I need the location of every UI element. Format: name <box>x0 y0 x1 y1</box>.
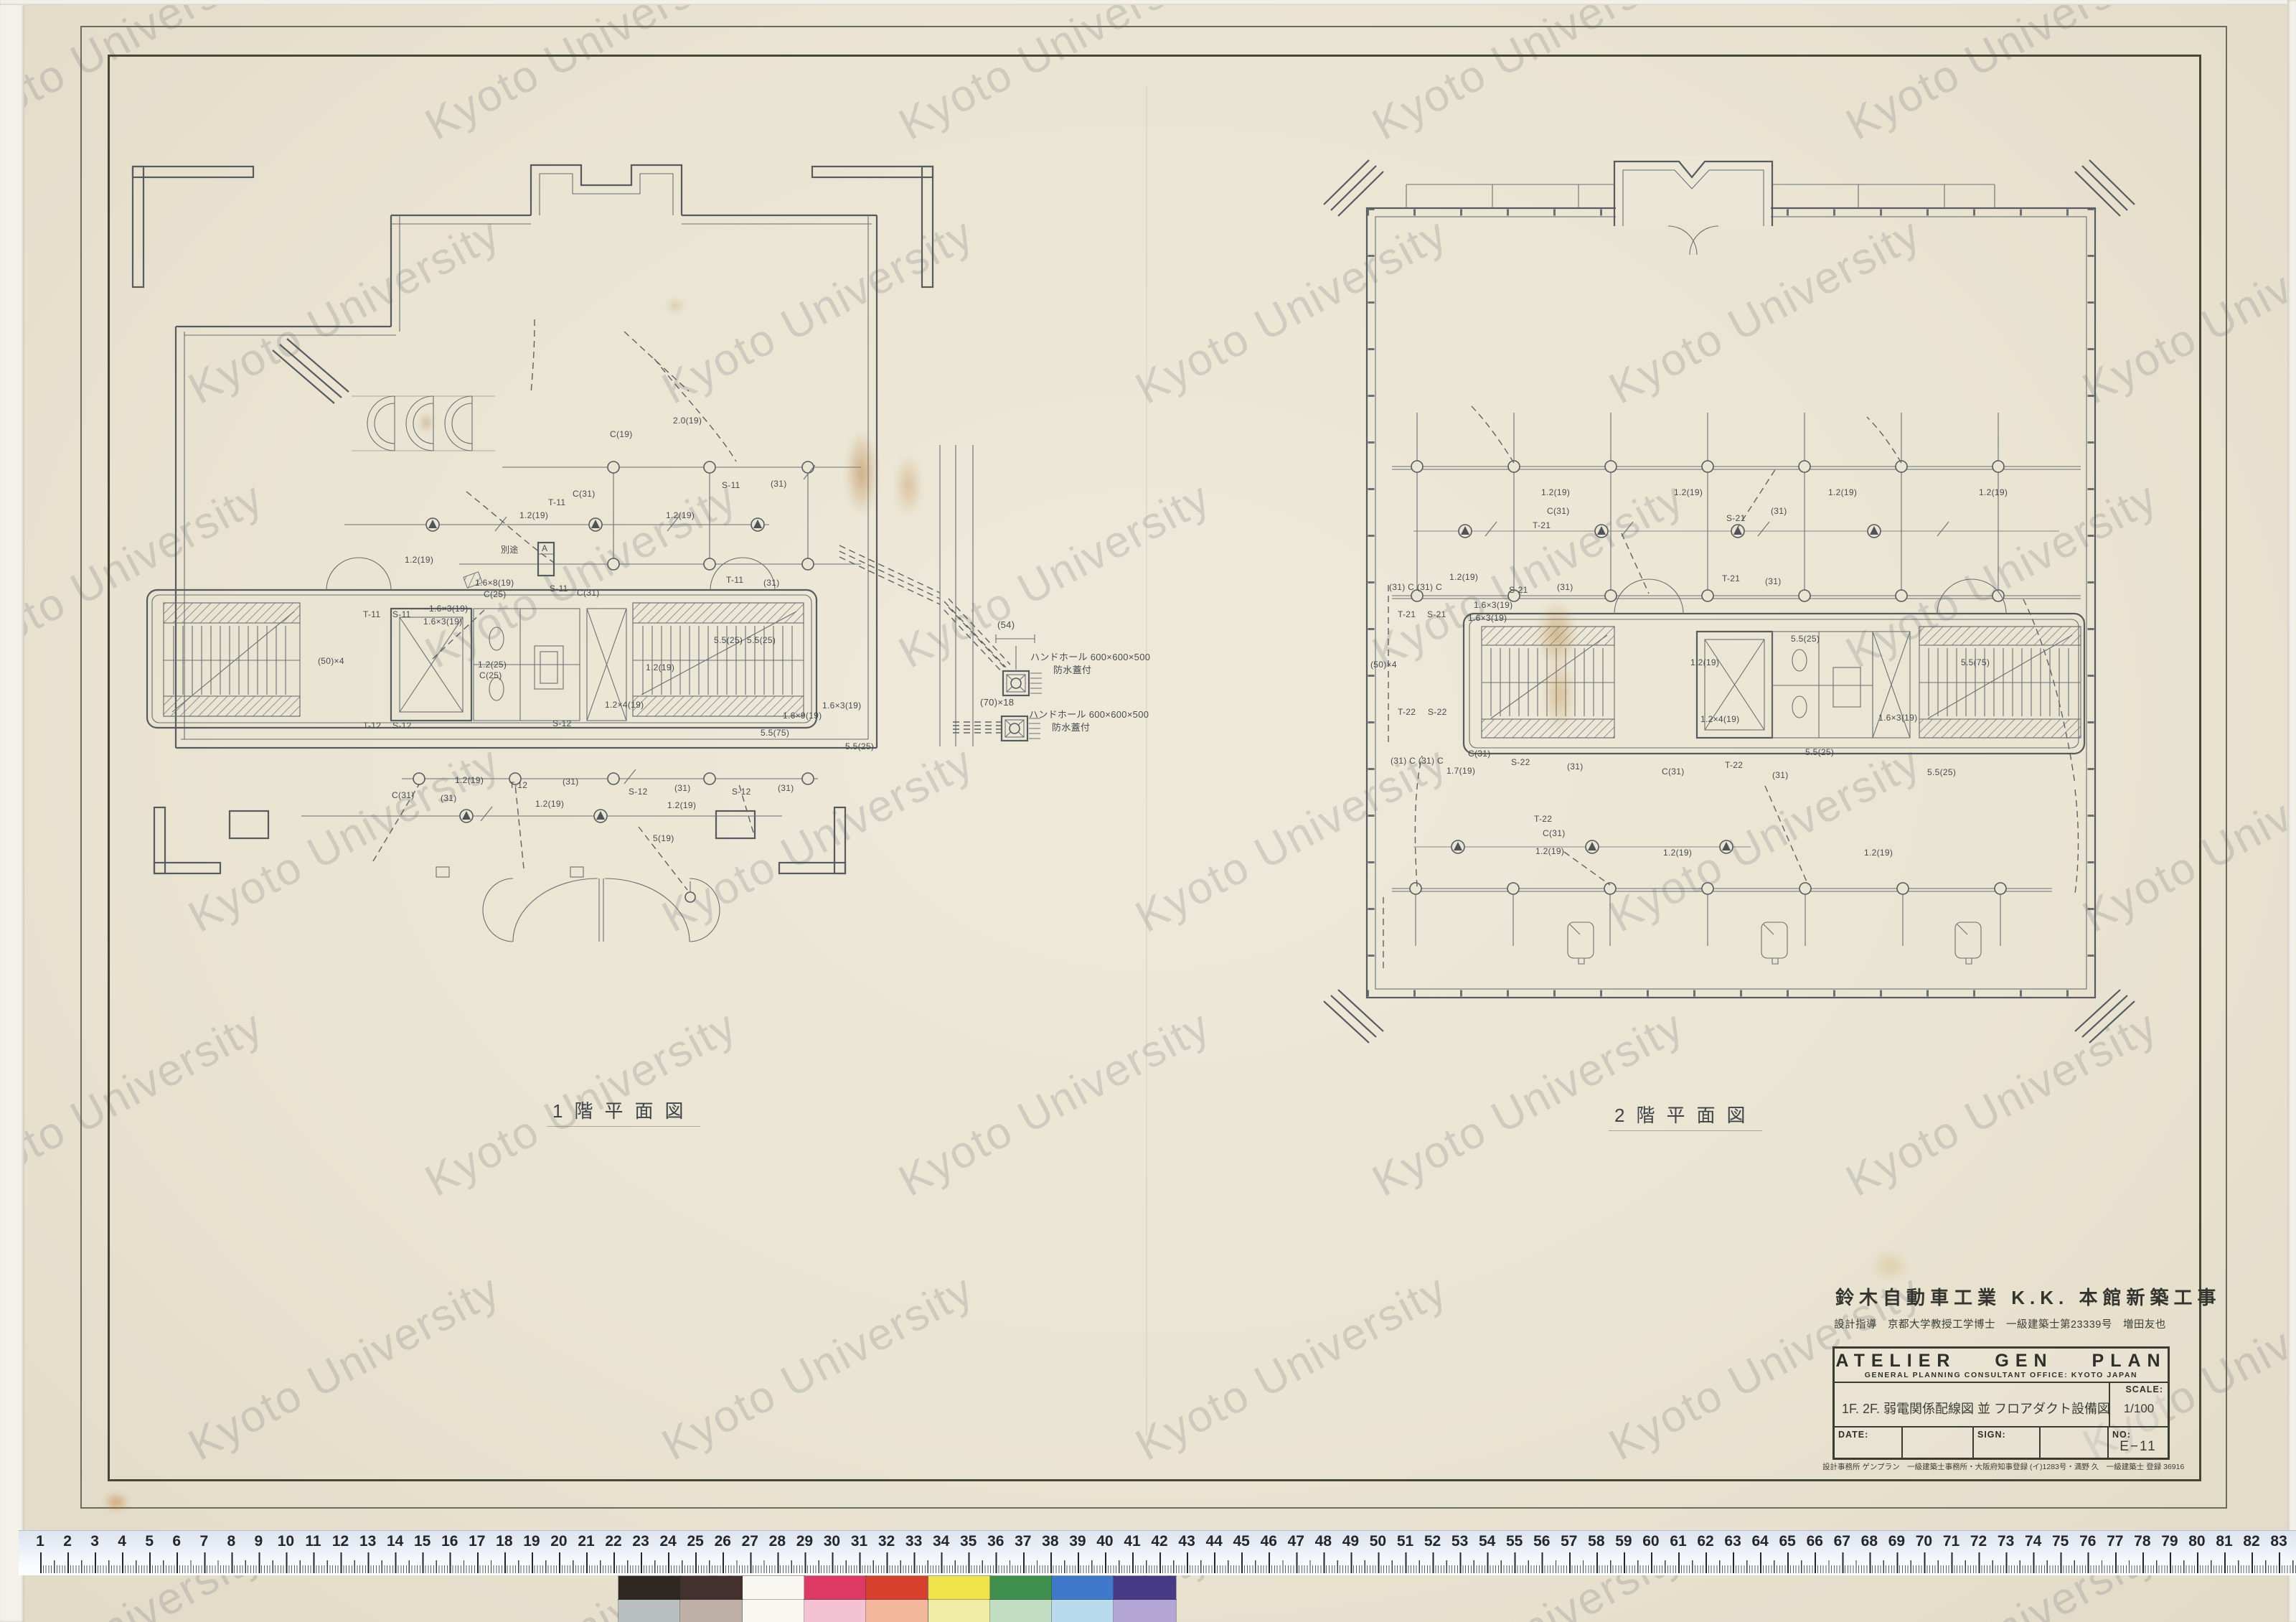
number-cell: NO: E−11 <box>2109 1428 2168 1459</box>
wiring-label: 1.2(19) <box>1979 487 2008 497</box>
ruler-number: 10 <box>278 1533 294 1550</box>
ruler-number: 61 <box>1670 1533 1686 1550</box>
wiring-label: T-21 <box>1533 520 1551 530</box>
color-patch <box>680 1600 742 1622</box>
wiring-label: 1.6×3(19) <box>429 604 468 614</box>
number-label: NO: <box>2112 1430 2131 1440</box>
wiring-label: 5.5(25) <box>845 741 874 751</box>
wiring-label: (31) <box>441 793 457 803</box>
color-patch <box>928 1576 990 1600</box>
wiring-label: T-22 <box>1534 814 1552 824</box>
ruler-number: 21 <box>578 1533 594 1550</box>
wiring-label: 2.0(19) <box>673 416 702 426</box>
ruler-number: 8 <box>227 1533 236 1550</box>
ruler-number: 38 <box>1042 1533 1058 1550</box>
wiring-label: (31) <box>778 783 794 793</box>
ruler-number: 49 <box>1342 1533 1359 1550</box>
paper-stain <box>1537 601 1577 667</box>
wiring-label: A <box>542 543 547 553</box>
wiring-label: S-11 <box>550 583 568 594</box>
wiring-label: 1.2×4(19) <box>605 700 644 710</box>
wiring-label: 1.6×9(19) <box>783 711 822 721</box>
ruler-number: 27 <box>742 1533 758 1550</box>
paper-stain <box>666 299 684 313</box>
wiring-label: S-21 <box>1726 513 1746 523</box>
ruler-number: 6 <box>172 1533 181 1550</box>
floor-plan-2f-drawing <box>1306 140 2152 1044</box>
wiring-label: T-11 <box>363 609 380 619</box>
ruler-number: 7 <box>199 1533 208 1550</box>
paper-stain <box>894 455 923 517</box>
scanner-edge-left <box>0 0 24 1622</box>
registration-line: 設計事務所 ゲンプラン 一級建築士事務所・大阪府知事登録 (イ)1283号・満野… <box>1822 1461 2175 1472</box>
ruler-number: 29 <box>796 1533 813 1550</box>
wiring-label: (31) <box>1772 770 1789 780</box>
wiring-label: C(25) <box>484 589 507 599</box>
wiring-label: 1.2(19) <box>1663 848 1692 858</box>
ruler-number: 63 <box>1724 1533 1741 1550</box>
color-patch <box>1114 1600 1175 1622</box>
ruler-number: 60 <box>1642 1533 1659 1550</box>
scale-label: SCALE: <box>2125 1384 2163 1394</box>
wiring-label: (31) C (31) C <box>1389 582 1442 592</box>
wiring-label: (54) <box>997 619 1015 630</box>
wiring-label: ハンドホール 600×600×500 <box>1029 707 1149 721</box>
ruler-number: 56 <box>1533 1533 1550 1550</box>
wiring-label: T-11 <box>548 497 565 507</box>
date-value <box>1903 1428 1974 1459</box>
paper-stain <box>1543 659 1576 729</box>
wiring-label: (31) C (31) C <box>1391 756 1444 766</box>
wiring-label: 1.2×4(19) <box>1700 714 1739 724</box>
wiring-label: S-11 <box>392 609 411 619</box>
wiring-label: 5(19) <box>653 833 674 843</box>
ruler-number: 37 <box>1015 1533 1031 1550</box>
color-patch <box>618 1600 680 1622</box>
project-architect-line: 設計指導 京都大学教授工学博士 一級建築士第23339号 増田友也 <box>1834 1316 2166 1331</box>
wiring-label: S-21 <box>1427 609 1446 619</box>
wiring-label: C(25) <box>479 670 502 680</box>
ruler-number: 42 <box>1151 1533 1167 1550</box>
caption-floor-1: 1階平面図 <box>547 1097 700 1127</box>
wiring-label: S-21 <box>1509 585 1528 595</box>
color-patch <box>866 1576 928 1600</box>
wiring-label: (70)×18 <box>980 697 1014 708</box>
color-patch <box>804 1600 866 1622</box>
ruler-number: 11 <box>305 1533 321 1550</box>
color-patch <box>618 1576 680 1600</box>
ruler-number: 51 <box>1397 1533 1413 1550</box>
date-label: DATE: <box>1835 1428 1903 1459</box>
ruler-number: 35 <box>960 1533 977 1550</box>
color-patch <box>990 1576 1052 1600</box>
ruler-number: 33 <box>905 1533 922 1550</box>
ruler-number: 3 <box>90 1533 99 1550</box>
wiring-label: C(31) <box>1468 749 1491 759</box>
wiring-label: 1.2(19) <box>1828 487 1857 497</box>
ruler-number: 54 <box>1479 1533 1495 1550</box>
wiring-label: T-11 <box>726 575 743 585</box>
ruler-number: 69 <box>1888 1533 1905 1550</box>
ruler-number: 2 <box>63 1533 72 1550</box>
ruler-number: 75 <box>2052 1533 2069 1550</box>
wiring-label: 防水蓋付 <box>1053 662 1091 676</box>
wiring-label: (31) <box>1765 576 1782 586</box>
ruler-number: 71 <box>1943 1533 1959 1550</box>
ruler-number: 43 <box>1178 1533 1195 1550</box>
wiring-label: 1.2(19) <box>1690 657 1719 667</box>
wiring-label: C(31) <box>1543 828 1566 838</box>
ruler-number: 16 <box>441 1533 458 1550</box>
wiring-label: (31) <box>674 783 691 793</box>
wiring-label: (31) <box>1557 582 1573 592</box>
ruler-number: 66 <box>1807 1533 1823 1550</box>
ruler-number: 77 <box>2107 1533 2123 1550</box>
wiring-label: 1.6×8(19) <box>475 578 514 588</box>
color-patch <box>680 1576 742 1600</box>
wiring-label: 1.7(19) <box>1446 766 1475 776</box>
ruler-number: 47 <box>1288 1533 1304 1550</box>
color-patch <box>1052 1576 1114 1600</box>
ruler-number: 81 <box>2216 1533 2232 1550</box>
color-patch <box>928 1600 990 1622</box>
ruler-number: 26 <box>715 1533 731 1550</box>
wiring-label: 別途 <box>501 543 519 555</box>
wiring-label: T-12 <box>363 721 381 731</box>
wiring-label: 5.5(25) <box>1805 747 1834 757</box>
wiring-label: 1.6×3(19) <box>1468 613 1507 623</box>
wiring-label: S-12 <box>552 718 572 728</box>
ruler-number: 73 <box>1998 1533 2014 1550</box>
wiring-label: S-22 <box>1511 757 1530 767</box>
ruler-number: 78 <box>2134 1533 2150 1550</box>
ruler-number: 22 <box>605 1533 621 1550</box>
ruler-number: 70 <box>1916 1533 1932 1550</box>
ruler-number: 65 <box>1779 1533 1796 1550</box>
ruler-number: 44 <box>1205 1533 1222 1550</box>
ruler-number: 23 <box>632 1533 649 1550</box>
ruler-number: 58 <box>1588 1533 1604 1550</box>
ruler-number: 80 <box>2188 1533 2205 1550</box>
ruler-number: 45 <box>1233 1533 1250 1550</box>
ruler-number: 4 <box>118 1533 126 1550</box>
scale-ruler: 1234567891011121314151617181920212223242… <box>19 1530 2296 1575</box>
wiring-label: C(31) <box>577 588 600 598</box>
color-patch <box>743 1576 804 1600</box>
office-subtitle: GENERAL PLANNING CONSULTANT OFFICE: KYOT… <box>1835 1371 2168 1379</box>
wiring-label: 1.2(25) <box>478 660 507 670</box>
ruler-number: 48 <box>1315 1533 1332 1550</box>
ruler-number: 62 <box>1697 1533 1713 1550</box>
wiring-label: 1.6×3(19) <box>423 617 462 627</box>
wiring-label: 1.6×3(19) <box>822 700 861 711</box>
color-patch <box>1052 1600 1114 1622</box>
scale-cell: SCALE: 1/100 <box>2110 1383 2168 1426</box>
ruler-number: 53 <box>1452 1533 1468 1550</box>
wiring-label: C(19) <box>610 429 633 439</box>
wiring-label: C(31) <box>392 790 415 800</box>
ruler-number: 13 <box>359 1533 376 1550</box>
wiring-label: (31) <box>563 777 579 787</box>
wiring-label: (31) <box>1567 761 1584 772</box>
ruler-number: 72 <box>1970 1533 1987 1550</box>
color-patch <box>866 1600 928 1622</box>
wiring-label: 1.2(19) <box>455 775 484 785</box>
office-name: ATELIER GEN PLAN <box>1835 1349 2168 1372</box>
wiring-label: 1.2(19) <box>519 510 548 520</box>
ruler-number: 46 <box>1261 1533 1277 1550</box>
ruler-number: 31 <box>851 1533 867 1550</box>
sign-label: SIGN: <box>1974 1428 2041 1459</box>
ruler-number: 12 <box>332 1533 349 1550</box>
wiring-label: 5.5(25) <box>747 635 776 645</box>
wiring-label: 1.2(19) <box>1864 848 1893 858</box>
ruler-number: 36 <box>987 1533 1004 1550</box>
scale-value: 1/100 <box>2110 1402 2168 1416</box>
wiring-label: (31) <box>1771 506 1787 516</box>
ruler-number: 34 <box>933 1533 949 1550</box>
wiring-label: (50)×4 <box>318 656 344 666</box>
wiring-label: T-21 <box>1398 609 1416 619</box>
ruler-number: 28 <box>769 1533 786 1550</box>
wiring-label: ハンドホール 600×600×500 <box>1030 650 1150 663</box>
number-value: E−11 <box>2109 1439 2168 1455</box>
wiring-label: 1.2(19) <box>405 555 433 565</box>
scanned-drawing-page: Kyoto UniversityKyoto UniversityKyoto Un… <box>0 0 2296 1622</box>
wiring-label: S-11 <box>722 480 740 490</box>
ruler-number: 25 <box>687 1533 704 1550</box>
scanner-edge-right <box>2287 0 2296 1622</box>
wiring-label: 1.2(19) <box>1449 572 1478 582</box>
color-patch <box>743 1600 804 1622</box>
wiring-label: 5.5(75) <box>761 728 789 738</box>
wiring-label: T-22 <box>1398 707 1416 717</box>
wiring-label: 防水蓋付 <box>1052 720 1090 733</box>
wiring-label: S-12 <box>629 787 648 797</box>
wiring-label: 1.2(19) <box>1674 487 1703 497</box>
color-patch <box>1114 1576 1175 1600</box>
scanner-edge-top <box>0 0 2296 5</box>
wiring-label: C(31) <box>1662 767 1685 777</box>
ruler-number: 50 <box>1370 1533 1386 1550</box>
title-block: ATELIER GEN PLAN GENERAL PLANNING CONSUL… <box>1832 1346 2170 1460</box>
wiring-label: 1.2(19) <box>646 662 674 672</box>
sign-value <box>2041 1428 2109 1459</box>
wiring-label: 1.6×3(19) <box>1878 713 1917 723</box>
ruler-number: 82 <box>2243 1533 2259 1550</box>
ruler-ticks-major <box>40 1552 2296 1573</box>
title-block-office: ATELIER GEN PLAN GENERAL PLANNING CONSUL… <box>1835 1349 2168 1383</box>
ruler-number: 1 <box>36 1533 44 1550</box>
ruler-number: 57 <box>1561 1533 1577 1550</box>
ruler-number: 15 <box>414 1533 430 1550</box>
wiring-label: 1.2(19) <box>1535 846 1564 856</box>
ruler-number: 30 <box>824 1533 840 1550</box>
wiring-label: 5.5(25) <box>1791 634 1820 644</box>
wiring-label: (31) <box>763 578 780 588</box>
ruler-number: 9 <box>255 1533 263 1550</box>
wiring-label: T-21 <box>1722 573 1740 583</box>
ruler-number: 83 <box>2270 1533 2287 1550</box>
ruler-number: 68 <box>1861 1533 1878 1550</box>
wiring-label: (50)×4 <box>1370 660 1397 670</box>
ruler-number: 39 <box>1069 1533 1086 1550</box>
paper-stain <box>419 413 433 432</box>
ruler-number: 20 <box>550 1533 567 1550</box>
wiring-label: C(31) <box>573 489 596 499</box>
wiring-label: S-12 <box>732 787 751 797</box>
ruler-number: 19 <box>523 1533 540 1550</box>
drawing-title: 1F. 2F. 弱電関係配線図 並 フロアダクト設備図 <box>1835 1383 2110 1426</box>
caption-floor-2: 2階平面図 <box>1609 1101 1762 1131</box>
ruler-number: 67 <box>1834 1533 1850 1550</box>
wiring-label: T-12 <box>509 780 527 790</box>
ruler-number: 5 <box>145 1533 154 1550</box>
ruler-number: 18 <box>496 1533 512 1550</box>
ruler-number: 64 <box>1751 1533 1768 1550</box>
ruler-number: 14 <box>387 1533 403 1550</box>
wiring-label: 5.5(75) <box>1961 657 1990 667</box>
wiring-label: S-12 <box>392 721 412 731</box>
wiring-label: 5.5(25) <box>1927 767 1956 777</box>
wiring-label: T-22 <box>1725 760 1743 770</box>
paper-stain <box>1871 1250 1909 1282</box>
wiring-label: 1.6×3(19) <box>1474 600 1512 610</box>
ruler-number: 79 <box>2161 1533 2178 1550</box>
floor-plan-1f-drawing <box>122 144 1148 955</box>
ruler-number: 52 <box>1424 1533 1441 1550</box>
project-title: 鈴木自動車工業 K.K. 本館新築工事 <box>1835 1283 2221 1310</box>
wiring-label: S-22 <box>1428 707 1447 717</box>
paper-stain <box>845 431 878 515</box>
ruler-number: 59 <box>1615 1533 1632 1550</box>
wiring-label: (31) <box>771 479 787 489</box>
wiring-label: 1.2(19) <box>1541 487 1570 497</box>
wiring-label: C(31) <box>1547 506 1570 516</box>
ruler-number: 76 <box>2079 1533 2096 1550</box>
ruler-number: 74 <box>2025 1533 2041 1550</box>
wiring-label: 1.2(19) <box>666 510 695 520</box>
wiring-label: 1.2(19) <box>535 799 564 809</box>
ruler-number: 32 <box>878 1533 895 1550</box>
color-patch <box>804 1576 866 1600</box>
ruler-number: 41 <box>1124 1533 1140 1550</box>
ruler-number: 24 <box>659 1533 676 1550</box>
color-patch <box>990 1600 1052 1622</box>
wiring-label: 5.5(25) <box>714 635 743 645</box>
ruler-number: 17 <box>469 1533 485 1550</box>
ruler-number: 55 <box>1506 1533 1523 1550</box>
wiring-label: 1.2(19) <box>667 800 696 810</box>
paper-stain <box>103 1493 129 1511</box>
ruler-number: 40 <box>1096 1533 1113 1550</box>
